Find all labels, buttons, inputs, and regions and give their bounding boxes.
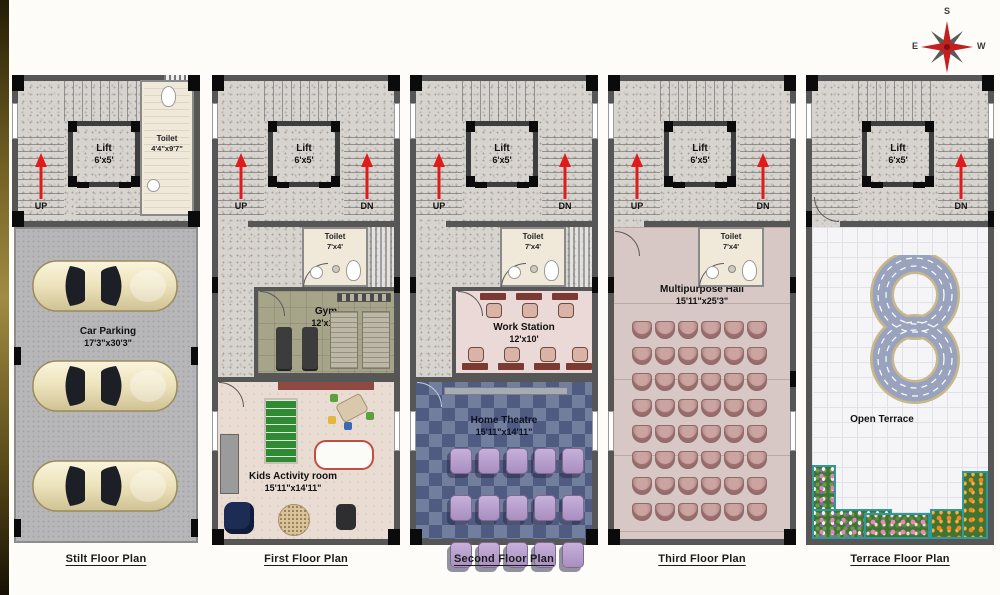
chair-icon xyxy=(678,425,698,443)
chair-icon xyxy=(701,321,721,339)
column-block xyxy=(790,277,796,293)
lift-door-jamb xyxy=(517,182,529,188)
toilet-label: Toilet xyxy=(502,232,564,242)
chair-icon xyxy=(678,373,698,391)
chair-icon xyxy=(655,347,675,365)
seat-icon xyxy=(450,495,472,521)
chair-icon xyxy=(724,321,744,339)
column-block xyxy=(608,277,614,293)
lift-door-jamb xyxy=(475,182,487,188)
chair-icon xyxy=(655,373,675,391)
chair-icon xyxy=(632,373,652,391)
plan-title-text: Second Floor Plan xyxy=(454,553,554,565)
down-arrow-icon xyxy=(954,153,968,199)
up-arrow-icon xyxy=(432,153,446,199)
window xyxy=(212,103,218,139)
toilet-room: Toilet 7'x4' xyxy=(302,227,368,287)
column-block xyxy=(188,75,200,91)
seat-icon xyxy=(506,495,528,521)
stilt-floor-plan: Lift 6'x5' UP Toilet 4'4"x9'7" xyxy=(12,75,200,545)
lift-column xyxy=(529,121,538,132)
chair-icon xyxy=(655,321,675,339)
lift-size-label: 6'x5' xyxy=(94,155,113,166)
first-floor-shell: Lift 6'x5' UP DN Toilet xyxy=(212,75,400,545)
desk-icon xyxy=(480,293,506,300)
stair-flight xyxy=(660,81,740,121)
up-label: UP xyxy=(424,201,454,211)
chair-icon xyxy=(701,425,721,443)
chair-icon xyxy=(632,425,652,443)
column-block xyxy=(592,277,598,293)
room-size: 12'x10' xyxy=(456,334,592,346)
lift-door-jamb xyxy=(871,182,883,188)
parking-label-block: Car Parking 17'3"x30'3" xyxy=(16,325,200,350)
seat-icon xyxy=(562,495,584,521)
lift-column xyxy=(862,176,871,187)
desk-icon xyxy=(552,293,578,300)
car-top-view xyxy=(30,457,180,515)
lift-column xyxy=(727,121,736,132)
column-block xyxy=(410,75,422,91)
chair-icon xyxy=(724,477,744,495)
lift-column xyxy=(268,176,277,187)
chair-icon xyxy=(632,451,652,469)
column-block xyxy=(212,277,218,293)
toilet-label-block: Toilet 7'x4' xyxy=(304,232,366,251)
office-chair-icon xyxy=(540,347,556,362)
plan-title-text: Third Floor Plan xyxy=(658,553,746,565)
chair-icon xyxy=(724,451,744,469)
theatre-label-block: Home Theatre 15'11"x14'11" xyxy=(416,414,592,439)
foosball-table-icon xyxy=(264,398,298,464)
lift-door-jamb xyxy=(673,182,685,188)
stair-flight xyxy=(462,81,542,121)
office-chair-icon xyxy=(522,303,538,318)
compass-label-top: S xyxy=(944,6,950,16)
lift-column xyxy=(529,176,538,187)
seat-icon xyxy=(478,495,500,521)
lift-label: Lift xyxy=(494,143,510,155)
second-floor-plan: Lift 6'x5' UP DN Toilet xyxy=(410,75,598,545)
column-block xyxy=(191,519,198,537)
first-plan-title: First Floor Plan xyxy=(212,553,400,565)
chair-icon xyxy=(701,451,721,469)
work-station-room: Work Station 12'x10' xyxy=(452,287,592,377)
window xyxy=(988,103,994,139)
toilet-label-block: Toilet 4'4"x9'7" xyxy=(142,134,192,153)
lift-column xyxy=(268,121,277,132)
car-top-view xyxy=(30,357,180,415)
rocker-icon xyxy=(336,504,356,530)
compass-star-icon xyxy=(921,21,973,73)
seat-icon xyxy=(534,495,556,521)
office-chair-icon xyxy=(486,303,502,318)
column-block xyxy=(982,75,994,91)
toilet-label-block: Toilet 7'x4' xyxy=(700,232,762,251)
toilet-room: Toilet 7'x4' xyxy=(698,227,764,287)
kids-label-block: Kids Activity room 15'11"x14'11" xyxy=(218,470,368,495)
lift-column xyxy=(68,176,77,187)
desk-icon xyxy=(516,293,542,300)
beanbag-icon xyxy=(224,502,254,534)
wall-band xyxy=(278,382,374,390)
chair-icon xyxy=(678,503,698,521)
toilet-size-label: 4'4"x9'7" xyxy=(142,144,192,153)
desk-icon xyxy=(462,363,488,370)
car-top-view xyxy=(30,257,180,315)
office-chair-icon xyxy=(572,347,588,362)
room-size: 15'11"x25'3" xyxy=(614,296,790,308)
chair-icon xyxy=(747,477,767,495)
stilt-toilet-room: Toilet 4'4"x9'7" xyxy=(140,80,194,216)
chair-icon xyxy=(724,425,744,443)
lift-column xyxy=(664,176,673,187)
lift-column xyxy=(331,121,340,132)
window xyxy=(592,411,598,451)
column-block xyxy=(806,211,812,227)
column-block xyxy=(191,347,198,365)
desk-icon xyxy=(498,363,524,370)
desk-icon xyxy=(566,363,592,370)
column-block xyxy=(410,529,422,545)
kids-chair-icon xyxy=(344,422,352,430)
room-name: Car Parking xyxy=(16,325,200,338)
chair-icon xyxy=(655,503,675,521)
toilet-label: Toilet xyxy=(304,232,366,242)
terrace-floor-shell: Open Terrace Lift 6'x5' xyxy=(806,75,994,545)
parking-area: Car Parking 17'3"x30'3" xyxy=(14,227,198,543)
stair-flight xyxy=(264,81,344,121)
seat-icon xyxy=(450,448,472,474)
chair-icon xyxy=(632,347,652,365)
column-block xyxy=(784,75,796,91)
window xyxy=(608,411,614,451)
column-block xyxy=(212,529,224,545)
lift-column xyxy=(131,176,140,187)
third-floor-shell: Multipurpose Hall 15'11"x25'3" Lift 6'x5… xyxy=(608,75,796,545)
chair-icon xyxy=(655,425,675,443)
kids-activity-room: Kids Activity room 15'11"x14'11" xyxy=(218,377,394,539)
compass-label-left: E xyxy=(912,41,918,51)
chair-icon xyxy=(747,451,767,469)
column-block xyxy=(410,277,416,293)
toilet-room: Toilet 7'x4' xyxy=(500,227,566,287)
chair-icon xyxy=(678,399,698,417)
dn-label: DN xyxy=(352,201,382,211)
chair-icon xyxy=(701,399,721,417)
interior-wall xyxy=(840,221,988,227)
column-block xyxy=(608,529,620,545)
sink-icon xyxy=(147,179,160,192)
chair-icon xyxy=(747,321,767,339)
lift-door-jamb xyxy=(77,182,89,188)
window xyxy=(790,103,796,139)
column-block xyxy=(188,211,200,227)
lift-door-jamb xyxy=(319,182,331,188)
chair-icon xyxy=(678,477,698,495)
chair-icon xyxy=(747,425,767,443)
column-block xyxy=(586,529,598,545)
up-arrow-icon xyxy=(234,153,248,199)
down-arrow-icon xyxy=(360,153,374,199)
treadmill-icon xyxy=(330,311,358,369)
lift-size-label: 6'x5' xyxy=(888,155,907,166)
door-arc xyxy=(615,231,640,256)
second-floor-shell: Lift 6'x5' UP DN Toilet xyxy=(410,75,598,545)
lift-shaft: Lift 6'x5' xyxy=(664,121,736,187)
third-floor-plan: Multipurpose Hall 15'11"x25'3" Lift 6'x5… xyxy=(608,75,796,545)
column-block xyxy=(388,75,400,91)
first-floor-plan: Lift 6'x5' UP DN Toilet xyxy=(212,75,400,545)
office-chair-icon xyxy=(504,347,520,362)
chair-icon xyxy=(701,373,721,391)
wc-icon xyxy=(346,260,361,281)
terrace-label-block: Open Terrace xyxy=(822,413,942,426)
chair-icon xyxy=(678,321,698,339)
stair-flight xyxy=(858,81,938,121)
chair-icon xyxy=(632,321,652,339)
chair-icon xyxy=(701,503,721,521)
kids-desk-icon xyxy=(335,393,369,424)
dn-label: DN xyxy=(748,201,778,211)
lift-shaft: Lift 6'x5' xyxy=(68,121,140,187)
sink-icon xyxy=(508,266,521,279)
window xyxy=(12,103,18,139)
chair-icon xyxy=(747,399,767,417)
office-chair-icon xyxy=(558,303,574,318)
treadmill-icon xyxy=(362,311,390,369)
window xyxy=(790,411,796,451)
hall-chair-grid xyxy=(632,321,767,521)
seat-icon xyxy=(506,448,528,474)
column-block xyxy=(12,75,24,91)
lift-door-jamb xyxy=(277,182,289,188)
room-size: 15'11"x14'11" xyxy=(218,483,368,495)
lift-door-jamb xyxy=(913,182,925,188)
chair-icon xyxy=(701,347,721,365)
column-block xyxy=(988,211,994,227)
room-name: Home Theatre xyxy=(416,414,592,427)
chair-icon xyxy=(678,347,698,365)
dn-label: DN xyxy=(946,201,976,211)
office-chair-icon xyxy=(468,347,484,362)
terrace-floor-plan: Open Terrace Lift 6'x5' xyxy=(806,75,994,545)
lift-shaft: Lift 6'x5' xyxy=(466,121,538,187)
down-arrow-icon xyxy=(756,153,770,199)
lift-size-label: 6'x5' xyxy=(294,155,313,166)
toilet-size-label: 7'x4' xyxy=(304,242,366,251)
lift-column xyxy=(862,121,871,132)
column-block xyxy=(12,211,24,227)
up-label: UP xyxy=(622,201,652,211)
shaft-hatch xyxy=(370,227,394,287)
wc-icon xyxy=(161,86,176,107)
chair-icon xyxy=(655,477,675,495)
lift-size-label: 6'x5' xyxy=(690,155,709,166)
toilet-size-label: 7'x4' xyxy=(502,242,564,251)
plan-title-text: Stilt Floor Plan xyxy=(66,553,147,565)
plan-title-text: First Floor Plan xyxy=(264,553,348,565)
lift-door-jamb xyxy=(715,182,727,188)
window xyxy=(212,411,218,451)
second-plan-title: Second Floor Plan xyxy=(410,553,598,565)
room-name: Kids Activity room xyxy=(218,470,368,483)
seat-icon xyxy=(478,448,500,474)
window xyxy=(394,103,400,139)
window xyxy=(806,103,812,139)
column-block xyxy=(14,519,21,537)
lift-label: Lift xyxy=(96,143,112,155)
column-block xyxy=(394,277,400,293)
room-name: Open Terrace xyxy=(822,413,942,426)
chair-icon xyxy=(747,373,767,391)
chair-icon xyxy=(701,477,721,495)
kids-chair-icon xyxy=(330,394,338,402)
column-block xyxy=(586,75,598,91)
seat-icon xyxy=(534,448,556,474)
lift-label: Lift xyxy=(296,143,312,155)
toilet-label: Toilet xyxy=(700,232,762,242)
gym-hooks xyxy=(337,293,391,302)
column-block xyxy=(212,75,224,91)
chair-icon xyxy=(747,503,767,521)
chair-icon xyxy=(724,373,744,391)
room-size: 17'3"x30'3" xyxy=(16,338,200,350)
column-block xyxy=(806,75,818,91)
window xyxy=(608,103,614,139)
terrace-plan-title: Terrace Floor Plan xyxy=(806,553,994,565)
third-plan-title: Third Floor Plan xyxy=(608,553,796,565)
column-block xyxy=(388,529,400,545)
chair-icon xyxy=(655,399,675,417)
lift-shaft: Lift 6'x5' xyxy=(862,121,934,187)
chair-icon xyxy=(724,399,744,417)
open-terrace: Open Terrace xyxy=(812,227,988,539)
figure-eight-track-icon xyxy=(845,255,985,405)
lift-column xyxy=(925,121,934,132)
flower-planter xyxy=(864,513,930,539)
lift-column xyxy=(466,121,475,132)
room-size: 15'11"x14'11" xyxy=(416,427,592,439)
chair-icon xyxy=(655,451,675,469)
lift-column xyxy=(131,121,140,132)
air-hockey-table-icon xyxy=(314,440,374,470)
shower-icon xyxy=(728,265,736,273)
up-arrow-icon xyxy=(630,153,644,199)
workstation-label-block: Work Station 12'x10' xyxy=(456,321,592,346)
column-block xyxy=(790,371,796,387)
stilt-plan-title: Stilt Floor Plan xyxy=(12,553,200,565)
seat-icon xyxy=(562,448,584,474)
shower-icon xyxy=(332,265,340,273)
lift-door-jamb xyxy=(119,182,131,188)
window xyxy=(410,103,416,139)
chair-icon xyxy=(724,503,744,521)
chair-icon xyxy=(747,347,767,365)
chair-icon xyxy=(632,477,652,495)
lift-label: Lift xyxy=(890,143,906,155)
chair-icon xyxy=(632,399,652,417)
stilt-stair-block: Lift 6'x5' UP Toilet 4'4"x9'7" xyxy=(12,75,200,227)
dn-label: DN xyxy=(550,201,580,211)
sink-icon xyxy=(310,266,323,279)
toilet-label-block: Toilet 7'x4' xyxy=(502,232,564,251)
chair-icon xyxy=(678,451,698,469)
lift-shaft: Lift 6'x5' xyxy=(268,121,340,187)
gym-machine-icon xyxy=(302,327,318,369)
lift-column xyxy=(331,176,340,187)
door-arc xyxy=(219,382,244,407)
theatre-screen xyxy=(444,387,568,395)
shower-icon xyxy=(530,265,538,273)
wc-icon xyxy=(544,260,559,281)
column-block xyxy=(608,75,620,91)
column-block xyxy=(14,347,21,365)
down-arrow-icon xyxy=(558,153,572,199)
floor-plan-brochure: S N E W Lift 6'x5' xyxy=(0,0,1000,595)
gym-machine-icon xyxy=(276,327,292,369)
home-theatre-room: Home Theatre 15'11"x14'11" xyxy=(416,377,592,539)
chair-icon xyxy=(724,347,744,365)
lift-label: Lift xyxy=(692,143,708,155)
window xyxy=(592,103,598,139)
toilet-label: Toilet xyxy=(142,134,192,144)
room-name: Work Station xyxy=(456,321,592,334)
lift-column xyxy=(68,121,77,132)
wc-icon xyxy=(742,260,757,281)
window xyxy=(410,411,416,451)
desk-icon xyxy=(534,363,560,370)
lift-column xyxy=(664,121,673,132)
lift-column xyxy=(466,176,475,187)
lift-column xyxy=(727,176,736,187)
sink-icon xyxy=(706,266,719,279)
flower-planter xyxy=(962,471,988,539)
chair-icon xyxy=(632,503,652,521)
up-arrow-icon xyxy=(34,153,48,199)
round-table-icon xyxy=(278,504,310,536)
gym-room: Gym 12'x10' xyxy=(254,287,394,377)
kids-chair-icon xyxy=(366,412,374,420)
door-arc xyxy=(417,382,442,407)
theatre-seat-grid xyxy=(450,448,584,568)
page-edge-strip xyxy=(0,0,9,595)
lift-size-label: 6'x5' xyxy=(492,155,511,166)
up-label: UP xyxy=(226,201,256,211)
compass-label-right: W xyxy=(977,41,986,51)
toilet-size-label: 7'x4' xyxy=(700,242,762,251)
shaft-hatch xyxy=(568,227,592,287)
up-label: UP xyxy=(26,201,56,211)
lift-column xyxy=(925,176,934,187)
kids-chair-icon xyxy=(328,416,336,424)
plan-title-text: Terrace Floor Plan xyxy=(850,553,949,565)
window xyxy=(394,411,400,451)
stair-flight xyxy=(64,81,140,121)
column-block xyxy=(784,529,796,545)
